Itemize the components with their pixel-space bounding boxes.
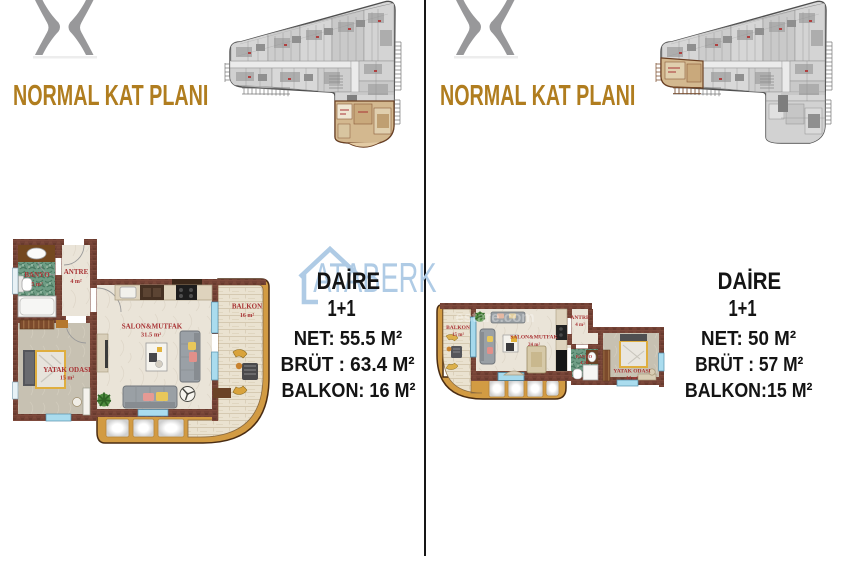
- svg-text:14 m²: 14 m²: [626, 376, 638, 382]
- svg-text:SALON&MUTFAK: SALON&MUTFAK: [122, 323, 183, 331]
- svg-text:BANYO: BANYO: [24, 271, 50, 279]
- svg-text:5 m²: 5 m²: [31, 282, 42, 288]
- svg-text:BALKON: BALKON: [232, 303, 262, 311]
- svg-text:24 m²: 24 m²: [528, 342, 540, 348]
- svg-text:YATAK ODASI: YATAK ODASI: [43, 366, 91, 374]
- svg-text:4.20: 4.20: [580, 360, 589, 365]
- svg-text:SALON&MUTFAK: SALON&MUTFAK: [510, 335, 558, 341]
- svg-text:31.5 m²: 31.5 m²: [141, 332, 161, 339]
- svg-text:4 m²: 4 m²: [70, 279, 81, 285]
- svg-text:ANTRE: ANTRE: [570, 315, 590, 321]
- svg-text:BANYO: BANYO: [576, 354, 593, 359]
- svg-text:ANTRE: ANTRE: [64, 268, 89, 276]
- svg-text:4 m²: 4 m²: [575, 322, 585, 328]
- svg-text:15 m²: 15 m²: [452, 332, 464, 338]
- svg-text:16 m²: 16 m²: [240, 313, 254, 319]
- svg-text:15 m²: 15 m²: [60, 376, 74, 382]
- svg-text:YATAK ODASI: YATAK ODASI: [613, 369, 650, 375]
- svg-text:estare.com: estare.com: [455, 309, 534, 326]
